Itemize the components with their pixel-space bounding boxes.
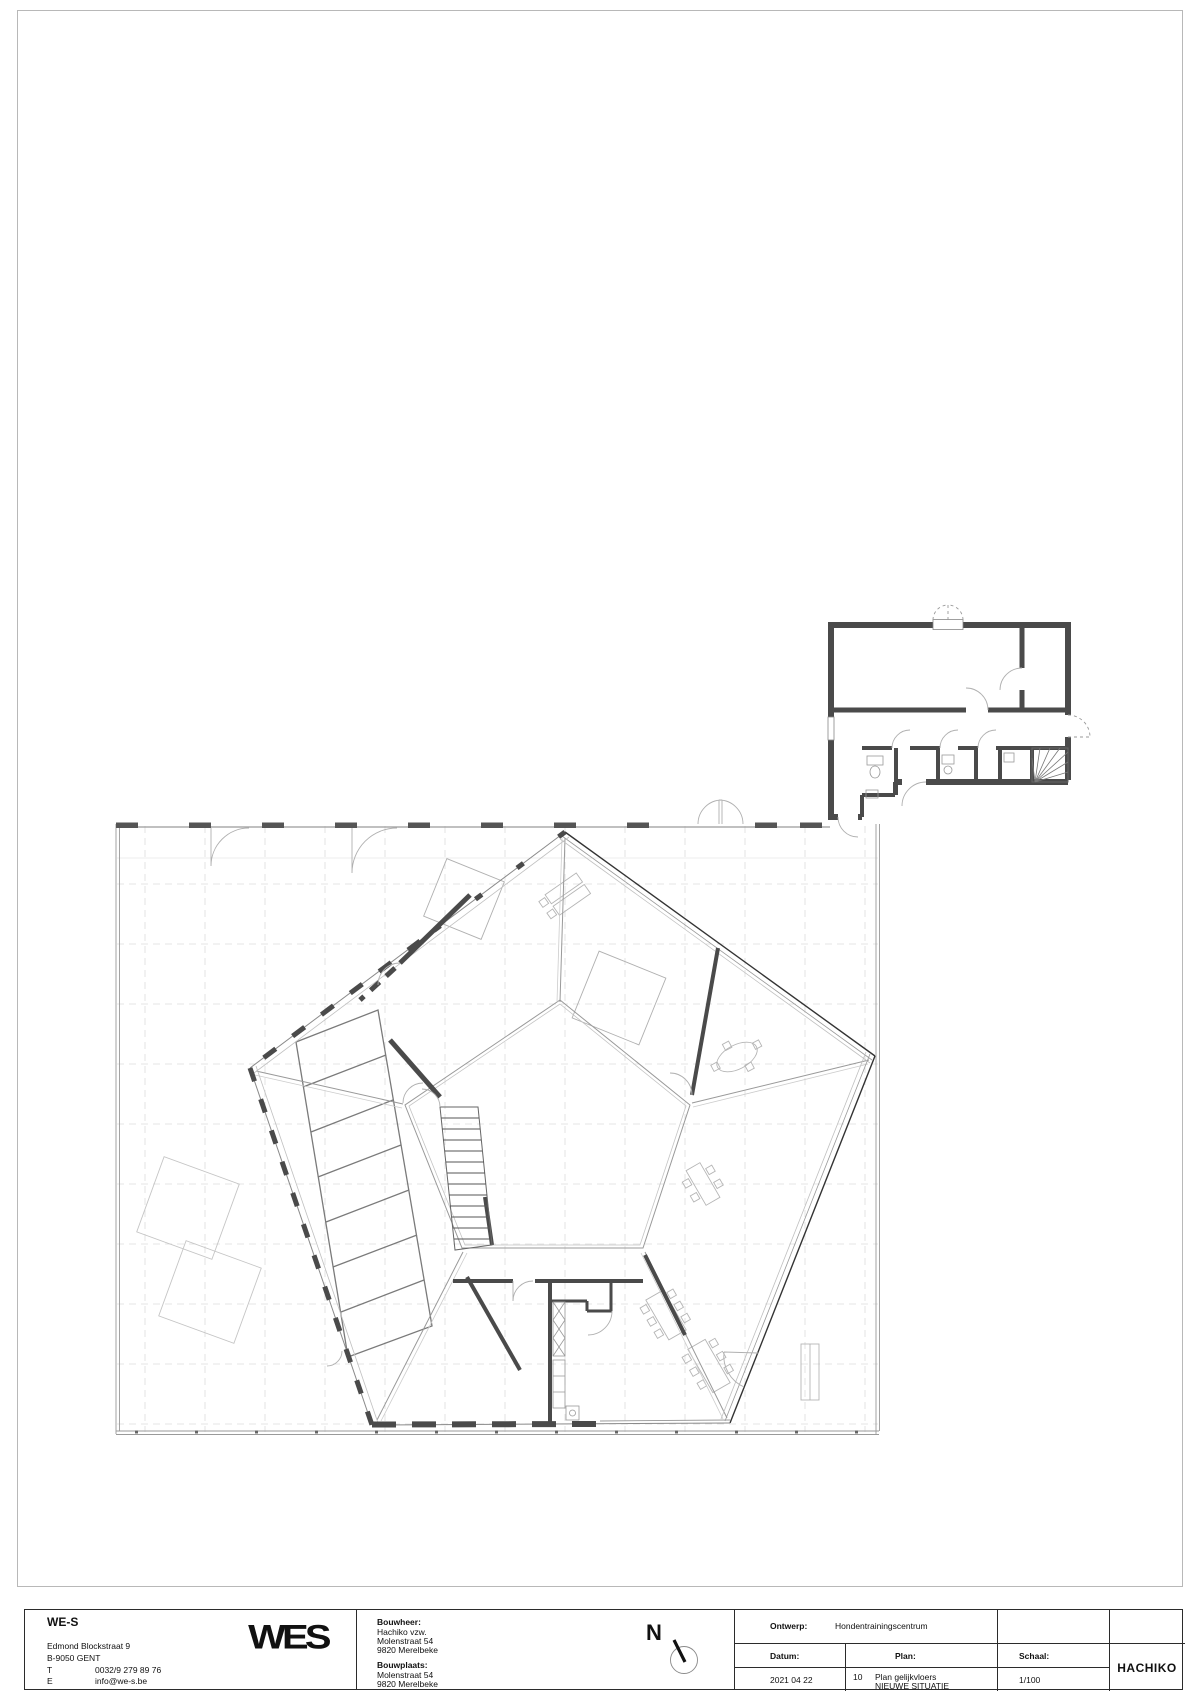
kitchen-fixtures [553, 1302, 579, 1420]
datum-value: 2021 04 22 [770, 1675, 813, 1685]
title-block: WE-S Edmond Blockstraat 9 B-9050 GENT T … [24, 1609, 1183, 1690]
client-city: 9820 Merelbeke [377, 1645, 438, 1655]
site-city: 9820 Merelbeke [377, 1679, 438, 1689]
firm-name: WE-S [47, 1615, 78, 1629]
north-label: N [646, 1620, 662, 1646]
drawing-sheet: WE-S Edmond Blockstraat 9 B-9050 GENT T … [0, 0, 1200, 1699]
plan-line2: NIEUWE SITUATIE [875, 1681, 949, 1691]
firm-phone: 0032/9 279 89 76 [95, 1665, 161, 1675]
project-code: HACHIKO [1109, 1644, 1185, 1691]
north-arrow-icon: N [644, 1624, 706, 1682]
firm-phone-label: T [47, 1665, 52, 1675]
outdoor-pens [137, 1157, 262, 1344]
firm-email-label: E [47, 1676, 53, 1686]
wes-logo: WES [248, 1618, 328, 1657]
ontwerp-label: Ontwerp: [770, 1621, 807, 1631]
ontwerp-row: Ontwerp: Hondentrainingscentrum [735, 1610, 1185, 1644]
site-label: Bouwplaats: [377, 1660, 428, 1670]
firm-cell: WE-S Edmond Blockstraat 9 B-9050 GENT T … [25, 1610, 356, 1689]
annex-building [828, 605, 1090, 837]
firm-address2: B-9050 GENT [47, 1653, 100, 1663]
plan-label: Plan: [895, 1651, 916, 1661]
schaal-value: 1/100 [1019, 1675, 1040, 1685]
long-table [801, 1344, 819, 1400]
ontwerp-value: Hondentrainingscentrum [835, 1621, 928, 1631]
firm-address1: Edmond Blockstraat 9 [47, 1641, 130, 1651]
datum-label: Datum: [770, 1651, 799, 1661]
plan-number: 10 [853, 1672, 862, 1682]
floor-plan-drawing [0, 0, 1200, 1699]
sheet-border [18, 11, 1183, 1587]
interior-walls [360, 895, 718, 1424]
enclosure-grid [117, 826, 878, 1432]
enclosure-boundary [116, 824, 880, 1435]
schaal-label: Schaal: [1019, 1651, 1049, 1661]
annex-stair [1032, 748, 1068, 782]
stair [440, 1107, 492, 1250]
tilted-room-outlines [424, 859, 666, 1045]
firm-email: info@we-s.be [95, 1676, 147, 1686]
enclosure-top-wall [116, 823, 830, 829]
client-site-cell: Bouwheer: Hachiko vzw. Molenstraat 54 98… [356, 1610, 734, 1689]
project-fields-cell: Ontwerp: Hondentrainingscentrum Datum: P… [734, 1610, 1184, 1689]
client-label: Bouwheer: [377, 1617, 421, 1627]
